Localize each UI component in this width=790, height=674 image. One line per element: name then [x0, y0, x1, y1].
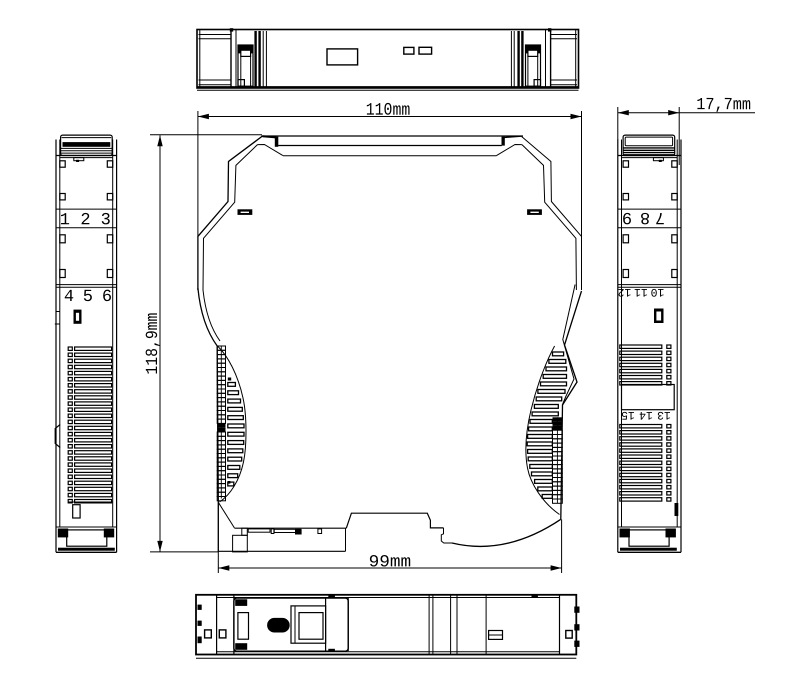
svg-text:12: 12 [618, 285, 632, 298]
svg-text:118,9mm: 118,9mm [144, 313, 163, 375]
svg-text:1: 1 [60, 211, 70, 230]
svg-text:17,7mm: 17,7mm [696, 96, 751, 115]
svg-text:13: 13 [657, 408, 671, 421]
svg-text:8: 8 [640, 207, 650, 226]
svg-text:99mm: 99mm [369, 553, 412, 572]
svg-text:5: 5 [83, 288, 93, 307]
svg-text:11: 11 [634, 285, 648, 298]
svg-text:4: 4 [64, 288, 74, 307]
svg-text:110mm: 110mm [366, 101, 411, 121]
svg-text:7: 7 [655, 207, 665, 226]
svg-text:2: 2 [80, 211, 90, 230]
svg-text:14: 14 [639, 408, 653, 421]
svg-text:3: 3 [101, 211, 111, 230]
svg-text:10: 10 [651, 285, 665, 298]
svg-text:6: 6 [102, 288, 112, 307]
svg-text:9: 9 [622, 207, 632, 226]
svg-text:15: 15 [621, 408, 635, 421]
